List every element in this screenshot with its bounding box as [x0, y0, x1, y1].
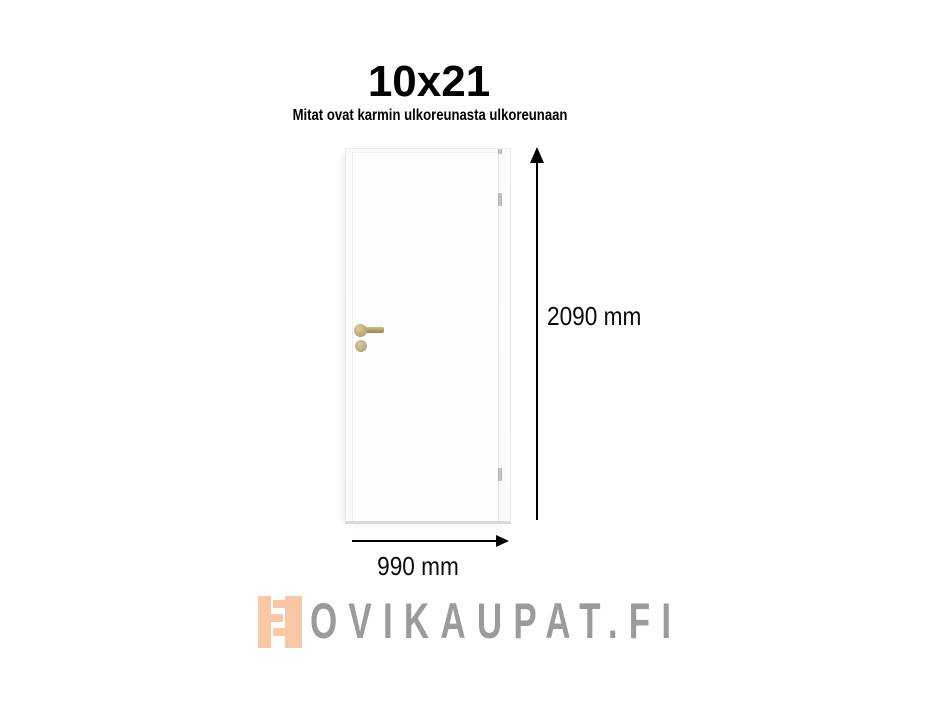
width-dimension-line — [352, 540, 497, 542]
door-hinge-bottom — [498, 468, 502, 481]
arrow-right-icon — [496, 535, 509, 547]
door-lock-knob — [355, 340, 367, 352]
height-dimension-label: 2090 mm — [547, 303, 641, 329]
subtitle: Mitat ovat karmin ulkoreunasta ulkoreuna… — [293, 108, 568, 124]
logo-text: OVIKAUPAT.FI — [310, 596, 682, 646]
door-hinge-middle — [498, 193, 502, 206]
door-hinge-icon — [258, 596, 302, 648]
width-dimension-label: 990 mm — [377, 553, 459, 579]
arrow-up-icon — [530, 147, 544, 163]
page-title: 10x21 — [368, 60, 490, 104]
door-hinge-top — [498, 149, 502, 154]
door-leaf — [352, 152, 499, 521]
door-handle-rose — [354, 324, 367, 337]
door-handle-lever — [365, 327, 384, 333]
height-dimension-line — [536, 161, 538, 520]
product-dimension-diagram: 10x21 Mitat ovat karmin ulkoreunasta ulk… — [0, 0, 939, 710]
door-illustration — [345, 148, 511, 524]
